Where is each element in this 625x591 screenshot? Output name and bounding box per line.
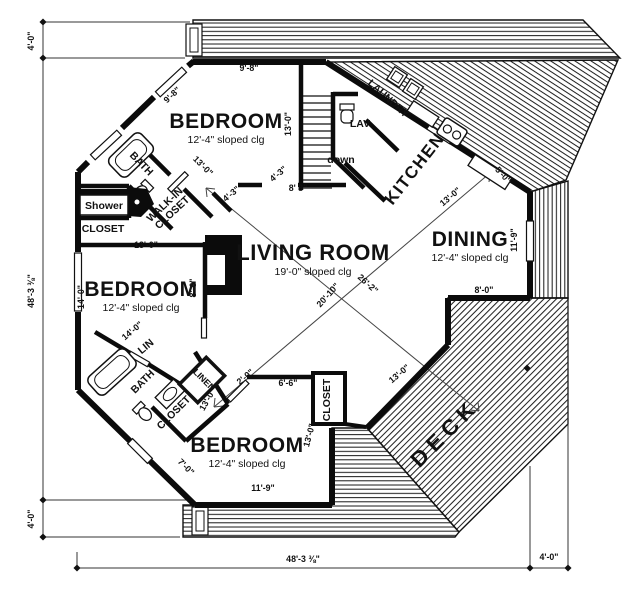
dimension-label: 13'-0" — [191, 154, 215, 178]
room-label-dining: DINING — [432, 228, 509, 251]
label-closet-bedroom3: CLOSET — [321, 378, 333, 421]
dimension-label: 4'-0" — [26, 510, 36, 529]
dimension-label: 11'-9" — [509, 228, 519, 251]
dimension-label: 14'-0" — [76, 285, 86, 309]
dimension-label: 11'-9" — [251, 483, 274, 493]
dimension-label: 14'-0" — [120, 319, 145, 342]
label-shower: Shower — [85, 200, 123, 212]
staircase-icon — [302, 96, 332, 188]
dimension-label: 13'-0" — [301, 422, 317, 448]
room-sub-bedroom-3: 12'-4" sloped clg — [209, 458, 286, 470]
dimension-label: 48'-3 ⅜" — [26, 274, 36, 308]
dimension-label: 8'-0" — [475, 285, 494, 295]
room-label-bedroom-2: BEDROOM — [84, 278, 197, 301]
floor-plan-sheet: BEDROOM12'-4" sloped clgBEDROOM12'-4" sl… — [0, 0, 625, 591]
dimension-label: 13'-0" — [438, 185, 463, 208]
room-label-bedroom-1: BEDROOM — [169, 110, 282, 133]
dimension-label: 7'-0" — [176, 457, 196, 477]
label-lin: LIN — [136, 337, 157, 357]
room-sub-dining: 12'-4" sloped clg — [432, 252, 509, 264]
label-stairs-down: down — [327, 154, 354, 166]
dimension-label: 6'-6" — [279, 378, 298, 388]
bedroom2-door — [202, 318, 207, 338]
label-bath-lower: BATH — [129, 368, 158, 397]
window — [527, 221, 534, 261]
room-sub-bedroom-1: 12'-4" sloped clg — [188, 134, 265, 146]
deck-east-band — [530, 181, 568, 298]
floor-plan-drawing: BEDROOM12'-4" sloped clgBEDROOM12'-4" sl… — [0, 0, 625, 591]
dimension-label: 13'-0" — [387, 362, 412, 385]
room-label-living-room: LIVING ROOM — [236, 240, 389, 265]
window — [128, 439, 153, 464]
deck-post — [186, 24, 202, 56]
deck-post — [192, 507, 208, 535]
label-lav: LAV — [350, 118, 370, 130]
room-sub-living-room: 19'-0" sloped clg — [275, 266, 352, 278]
dimension-label: 4'-0" — [26, 32, 36, 51]
toilet-icon — [132, 401, 154, 423]
dimension-label: 4'-3" — [268, 164, 289, 184]
dimension-label: 48'-3 ⅜" — [286, 554, 320, 564]
deck-top-band — [193, 20, 620, 58]
room-label-bedroom-3: BEDROOM — [190, 434, 303, 457]
dimension-label: 8' 8" — [289, 183, 308, 193]
room-sub-bedroom-2: 12'-4" sloped clg — [103, 302, 180, 314]
label-closet-left: CLOSET — [82, 223, 125, 235]
dimension-label: 8'-6" — [188, 279, 198, 298]
dimension-label: 9'-8" — [240, 63, 259, 73]
dimension-label: 13'-0" — [134, 240, 158, 250]
dimension-label: 13'-0" — [283, 112, 293, 136]
dimension-label: 4'-0" — [540, 552, 559, 562]
room-label-kitchen: KITCHEN — [381, 129, 449, 209]
